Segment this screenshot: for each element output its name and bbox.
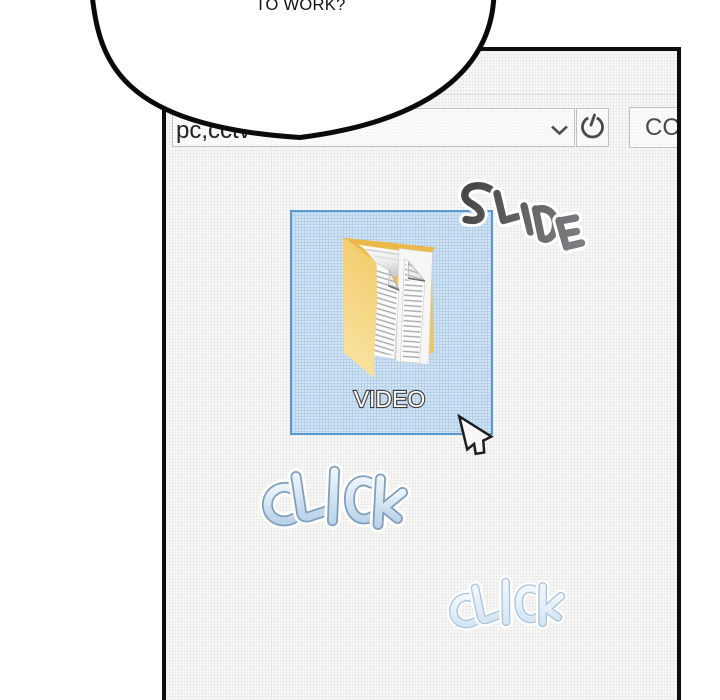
svg-text:VIDEO: VIDEO	[354, 386, 426, 412]
